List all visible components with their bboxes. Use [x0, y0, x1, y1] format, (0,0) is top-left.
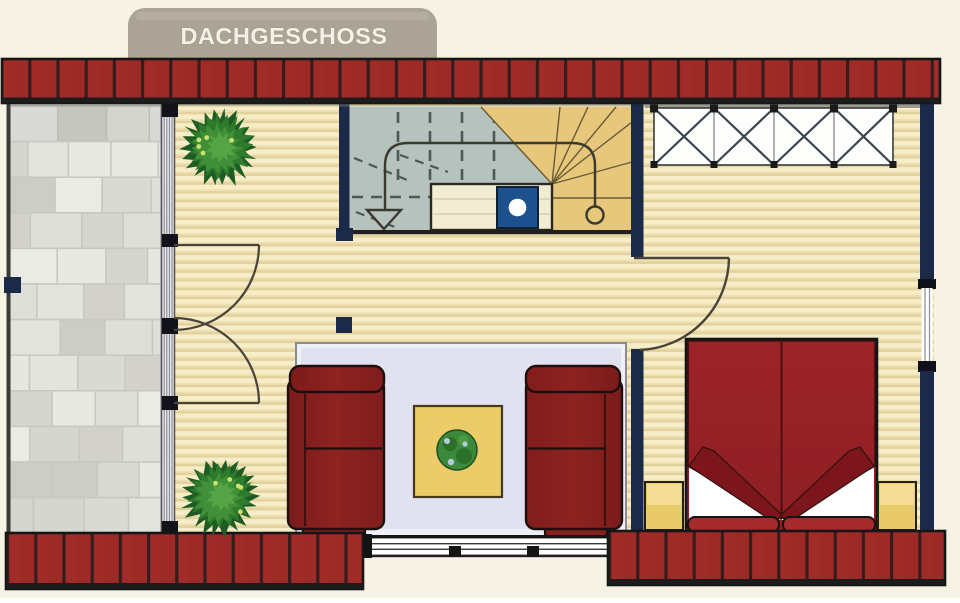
svg-text:DACHGESCHOSS: DACHGESCHOSS — [180, 23, 387, 49]
